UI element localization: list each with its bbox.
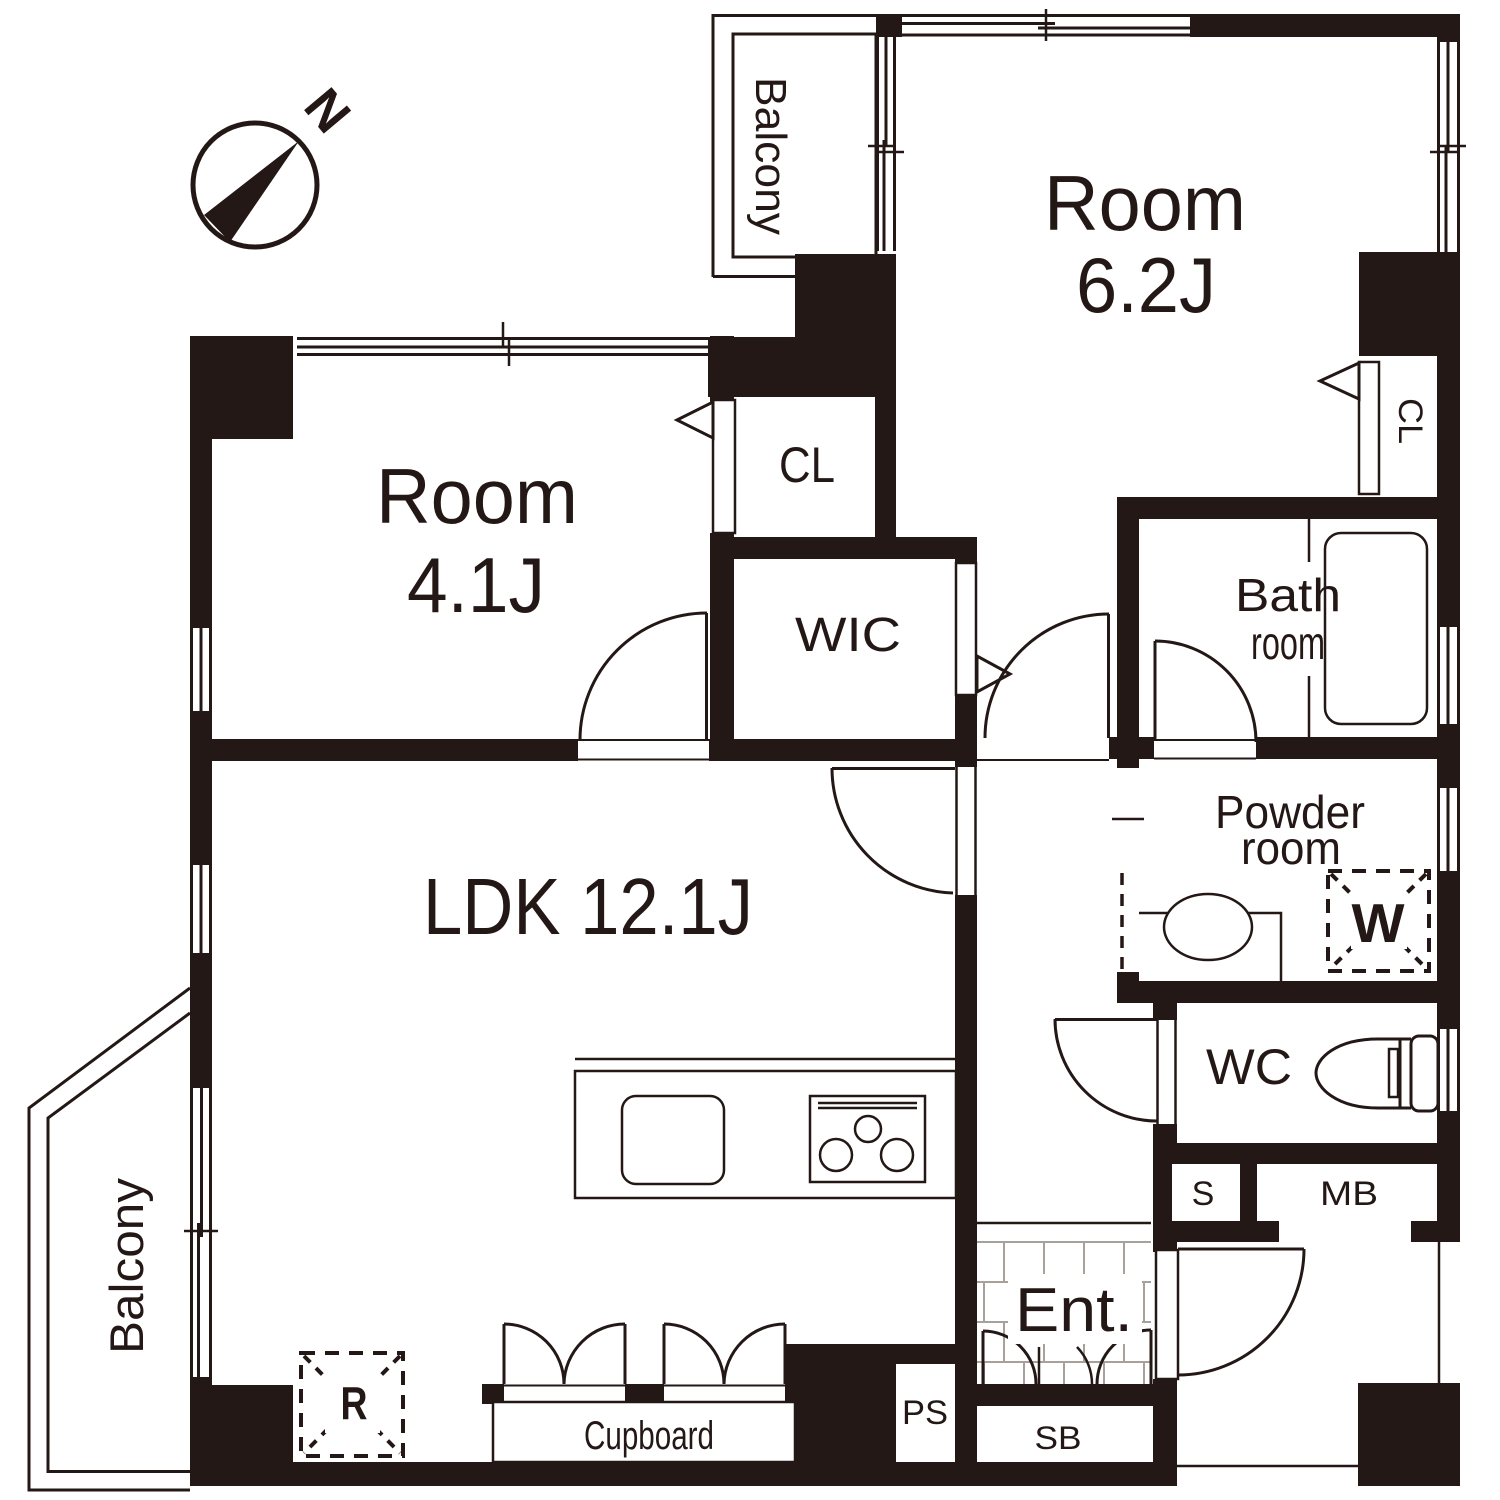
svg-text:CL: CL xyxy=(779,437,835,493)
svg-text:SB: SB xyxy=(1035,1420,1082,1456)
svg-text:W: W xyxy=(1352,892,1405,954)
svg-text:Ent.: Ent. xyxy=(1015,1276,1133,1345)
svg-text:PS: PS xyxy=(902,1394,948,1432)
svg-text:Balcony: Balcony xyxy=(746,77,795,235)
svg-text:Cupboard: Cupboard xyxy=(584,1414,714,1458)
svg-text:Bath: Bath xyxy=(1235,569,1341,621)
svg-text:WIC: WIC xyxy=(795,609,901,662)
svg-text:6.2J: 6.2J xyxy=(1076,241,1216,329)
svg-text:Balcony: Balcony xyxy=(100,1177,153,1354)
svg-text:room: room xyxy=(1241,822,1341,874)
svg-text:WC: WC xyxy=(1206,1039,1292,1095)
svg-text:Room: Room xyxy=(376,452,578,540)
svg-text:LDK 12.1J: LDK 12.1J xyxy=(423,862,753,951)
svg-text:MB: MB xyxy=(1320,1175,1378,1213)
svg-text:S: S xyxy=(1192,1175,1215,1213)
svg-text:CL: CL xyxy=(1391,398,1429,444)
svg-text:R: R xyxy=(341,1377,368,1429)
svg-text:room: room xyxy=(1251,617,1325,669)
svg-text:Room: Room xyxy=(1044,159,1246,247)
svg-text:4.1J: 4.1J xyxy=(407,541,545,629)
